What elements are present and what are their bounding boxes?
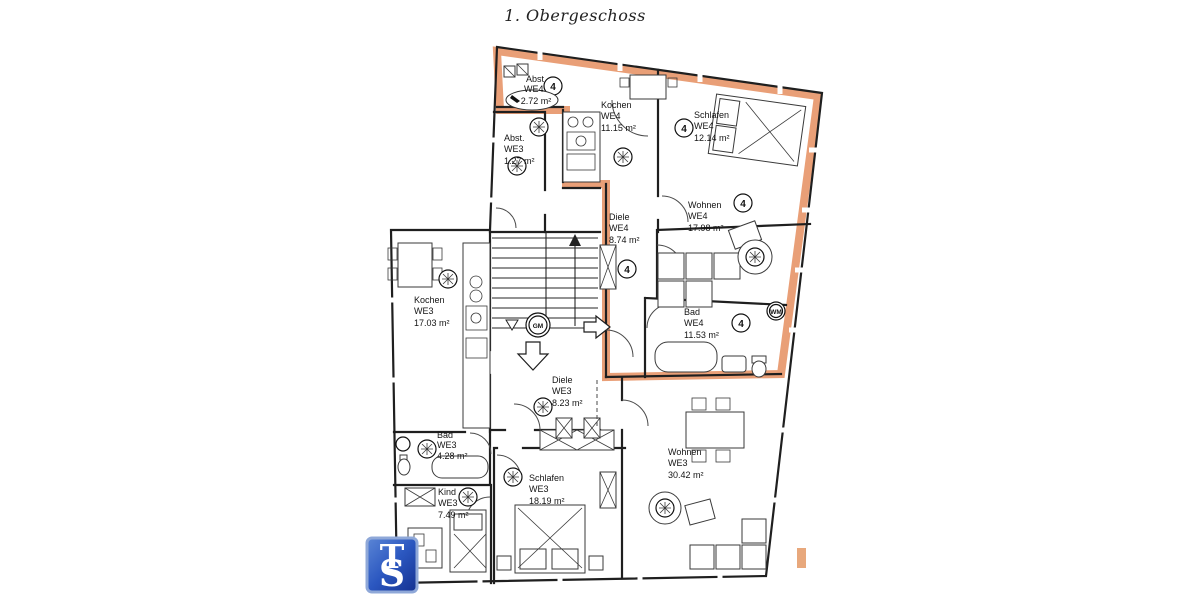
room-area: 11.53 m² [684,330,719,340]
room-area: 11.15 m² [601,123,636,133]
room-area: 7.49 m² [438,510,469,520]
kitchen-we3-icon [388,243,490,428]
logo-letter-s: S [379,553,405,595]
room-area: 1.27 m² [504,156,535,166]
gm-marker-label: GM [533,323,543,330]
room-unit: WE3 [437,440,457,450]
room-unit: WE4 [684,318,704,328]
room-area: 12.14 m² [694,133,730,143]
room-unit: WE3 [414,306,434,316]
bed-we4-icon [708,94,805,166]
room-unit: WE3 [504,144,524,154]
page-title: 1. Obergeschoss [504,6,646,25]
down-arrow-icon [518,342,548,370]
room-name: Abst. [526,74,547,84]
room-name: Bad [684,307,700,317]
unit4-marker: 4 [738,319,744,330]
room-unit: WE3 [668,458,688,468]
room-unit: WE3 [438,498,458,508]
room-name: Wohnen [688,200,721,210]
room-area: 18.19 m² [529,496,565,506]
room-name: Schlafen [694,110,729,120]
room-name: Schlafen [529,473,564,483]
room-unit: WE3 [552,386,572,396]
shelf-we4-icon [504,64,528,77]
room-name: Bad [437,430,453,440]
bed-we3-icon [497,505,603,573]
room-name: Abst. [504,133,525,143]
room-area: 17.98 m² [688,223,724,233]
unit4-marker: 4 [681,124,687,135]
room-area: 8.74 m² [609,235,640,245]
unit4-marker: 4 [624,265,630,276]
room-unit: WE4 [601,111,621,121]
room-area: 4.28 m² [437,451,468,461]
room-area: 17.03 m² [414,318,450,328]
wm-marker-label: WM [770,309,782,316]
room-name: Diele [609,212,630,222]
room-name: Wohnen [668,447,701,457]
accent-mark [797,548,806,568]
room-name: Kind [438,487,456,497]
room-unit: WE4 [609,223,629,233]
room-name: Diele [552,375,573,385]
room-area: 2.72 m² [521,96,552,106]
room-unit: WE4 [694,121,714,131]
wm-marker: WM [767,302,785,320]
company-logo: T S [367,537,417,595]
room-name: Kochen [414,295,445,305]
room-name: Kochen [601,100,632,110]
gm-marker: GM [526,313,550,337]
room-unit: WE4 [524,84,544,94]
room-area: 8.23 m² [552,398,583,408]
floor-plan-page: 1. Obergeschoss [0,0,1200,600]
living-we3-icon [649,398,766,569]
unit4-marker: 4 [550,82,556,93]
unit4-marker: 4 [740,199,746,210]
room-unit: WE4 [688,211,708,221]
room-unit: WE3 [529,484,549,494]
room-area: 30.42 m² [668,470,704,480]
floor-plan-canvas: 1. Obergeschoss [0,0,1200,600]
stair-up-arrow-icon [569,234,581,246]
